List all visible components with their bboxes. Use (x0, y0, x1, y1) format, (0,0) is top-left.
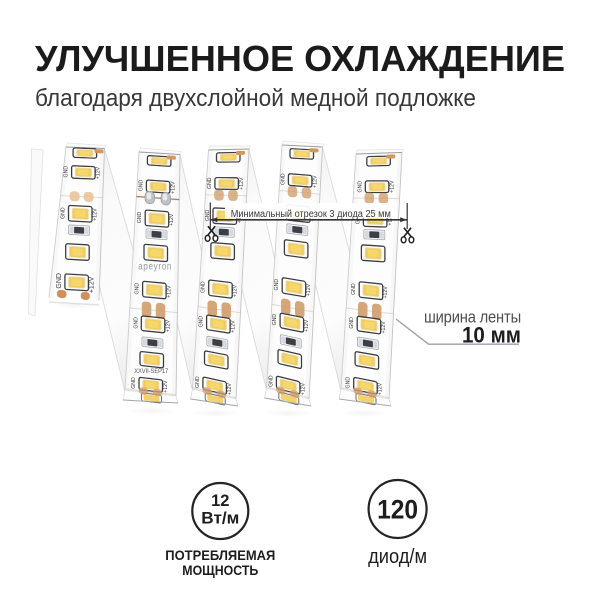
svg-text:+12V: +12V (227, 383, 233, 396)
svg-text:GND: GND (268, 375, 274, 387)
svg-text:120: 120 (377, 495, 418, 525)
svg-text:XXVII-SEP17: XXVII-SEP17 (134, 369, 169, 375)
svg-text:GND: GND (137, 211, 143, 223)
svg-text:+12V: +12V (312, 175, 318, 188)
svg-text:+12V: +12V (378, 382, 384, 395)
svg-text:GND: GND (138, 179, 144, 191)
svg-text:+12V: +12V (300, 383, 306, 396)
svg-text:GND: GND (201, 281, 207, 293)
svg-text:УЛУЧШЕННОЕ ОХЛАЖДЕНИЕ: УЛУЧШЕННОЕ ОХЛАЖДЕНИЕ (35, 38, 565, 79)
svg-text:GND: GND (131, 377, 137, 389)
svg-text:GND: GND (346, 377, 352, 389)
svg-text:GND: GND (280, 173, 286, 185)
svg-text:диод/м: диод/м (368, 546, 427, 568)
svg-text:+12V: +12V (96, 166, 102, 179)
svg-text:МОЩНОСТЬ: МОЩНОСТЬ (182, 562, 258, 578)
svg-text:GND: GND (351, 283, 357, 295)
svg-text:apeyron: apeyron (138, 261, 172, 273)
svg-text:GND: GND (56, 273, 63, 289)
svg-text:+12V: +12V (89, 276, 96, 293)
svg-text:+12V: +12V (239, 177, 245, 190)
svg-text:+12V: +12V (304, 319, 310, 332)
svg-text:+12V: +12V (169, 213, 175, 226)
svg-text:+12V: +12V (163, 380, 169, 393)
svg-text:GND: GND (349, 317, 355, 329)
svg-text:GND: GND (135, 283, 141, 295)
svg-text:GND: GND (195, 376, 201, 388)
svg-text:+12V: +12V (231, 320, 237, 333)
svg-text:+12V: +12V (389, 180, 395, 193)
svg-text:+12V: +12V (165, 319, 171, 332)
svg-text:GND: GND (61, 207, 67, 219)
svg-text:GND: GND (272, 314, 278, 326)
svg-text:+12V: +12V (383, 286, 389, 299)
svg-text:Минимальный отрезок 3 диода 25: Минимальный отрезок 3 диода 25 мм (231, 209, 391, 220)
svg-text:GND: GND (357, 181, 363, 193)
svg-text:+12V: +12V (167, 285, 173, 298)
svg-text:GND: GND (207, 177, 213, 189)
svg-text:GND: GND (274, 279, 280, 291)
svg-text:ПОТРЕБЛЯЕМАЯ: ПОТРЕБЛЯЕМАЯ (165, 547, 275, 563)
svg-text:+12V: +12V (170, 181, 176, 194)
svg-text:благодаря двухслойной медной п: благодаря двухслойной медной подложке (35, 85, 476, 112)
svg-text:+12V: +12V (233, 284, 239, 297)
svg-text:12: 12 (211, 492, 229, 510)
svg-text:GND: GND (133, 317, 139, 329)
svg-text:+12V: +12V (381, 321, 387, 334)
svg-text:10 мм: 10 мм (462, 323, 521, 348)
svg-text:GND: GND (199, 316, 205, 328)
svg-text:+12V: +12V (306, 283, 312, 296)
svg-text:+12V: +12V (93, 208, 99, 221)
svg-text:GND: GND (64, 166, 70, 178)
svg-text:Вт/м: Вт/м (201, 510, 239, 528)
